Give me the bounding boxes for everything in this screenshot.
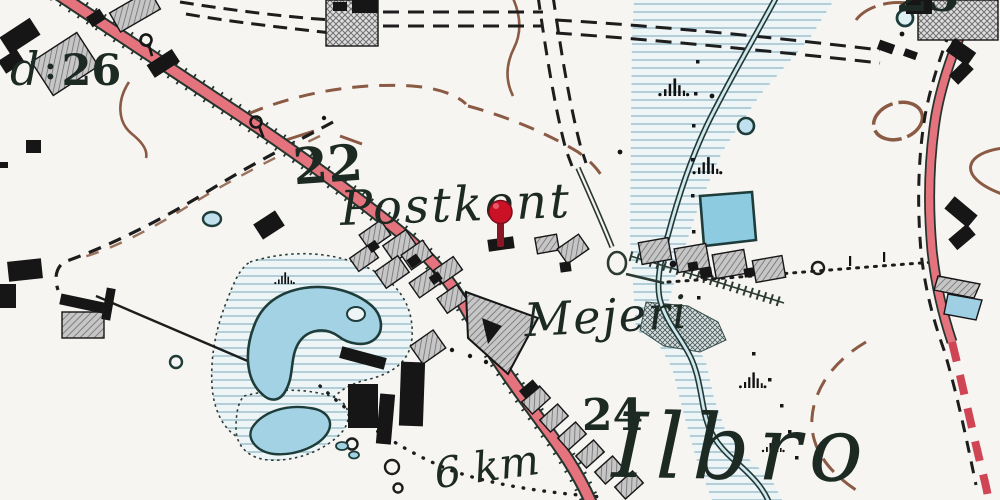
paths-and-boundaries [56,0,976,497]
buildings [0,0,998,499]
map-viewport[interactable]: d : 26 22 25 Postkont Mejeri 24 Ilbro 6 … [0,0,1000,500]
map-canvas[interactable] [0,0,1000,500]
